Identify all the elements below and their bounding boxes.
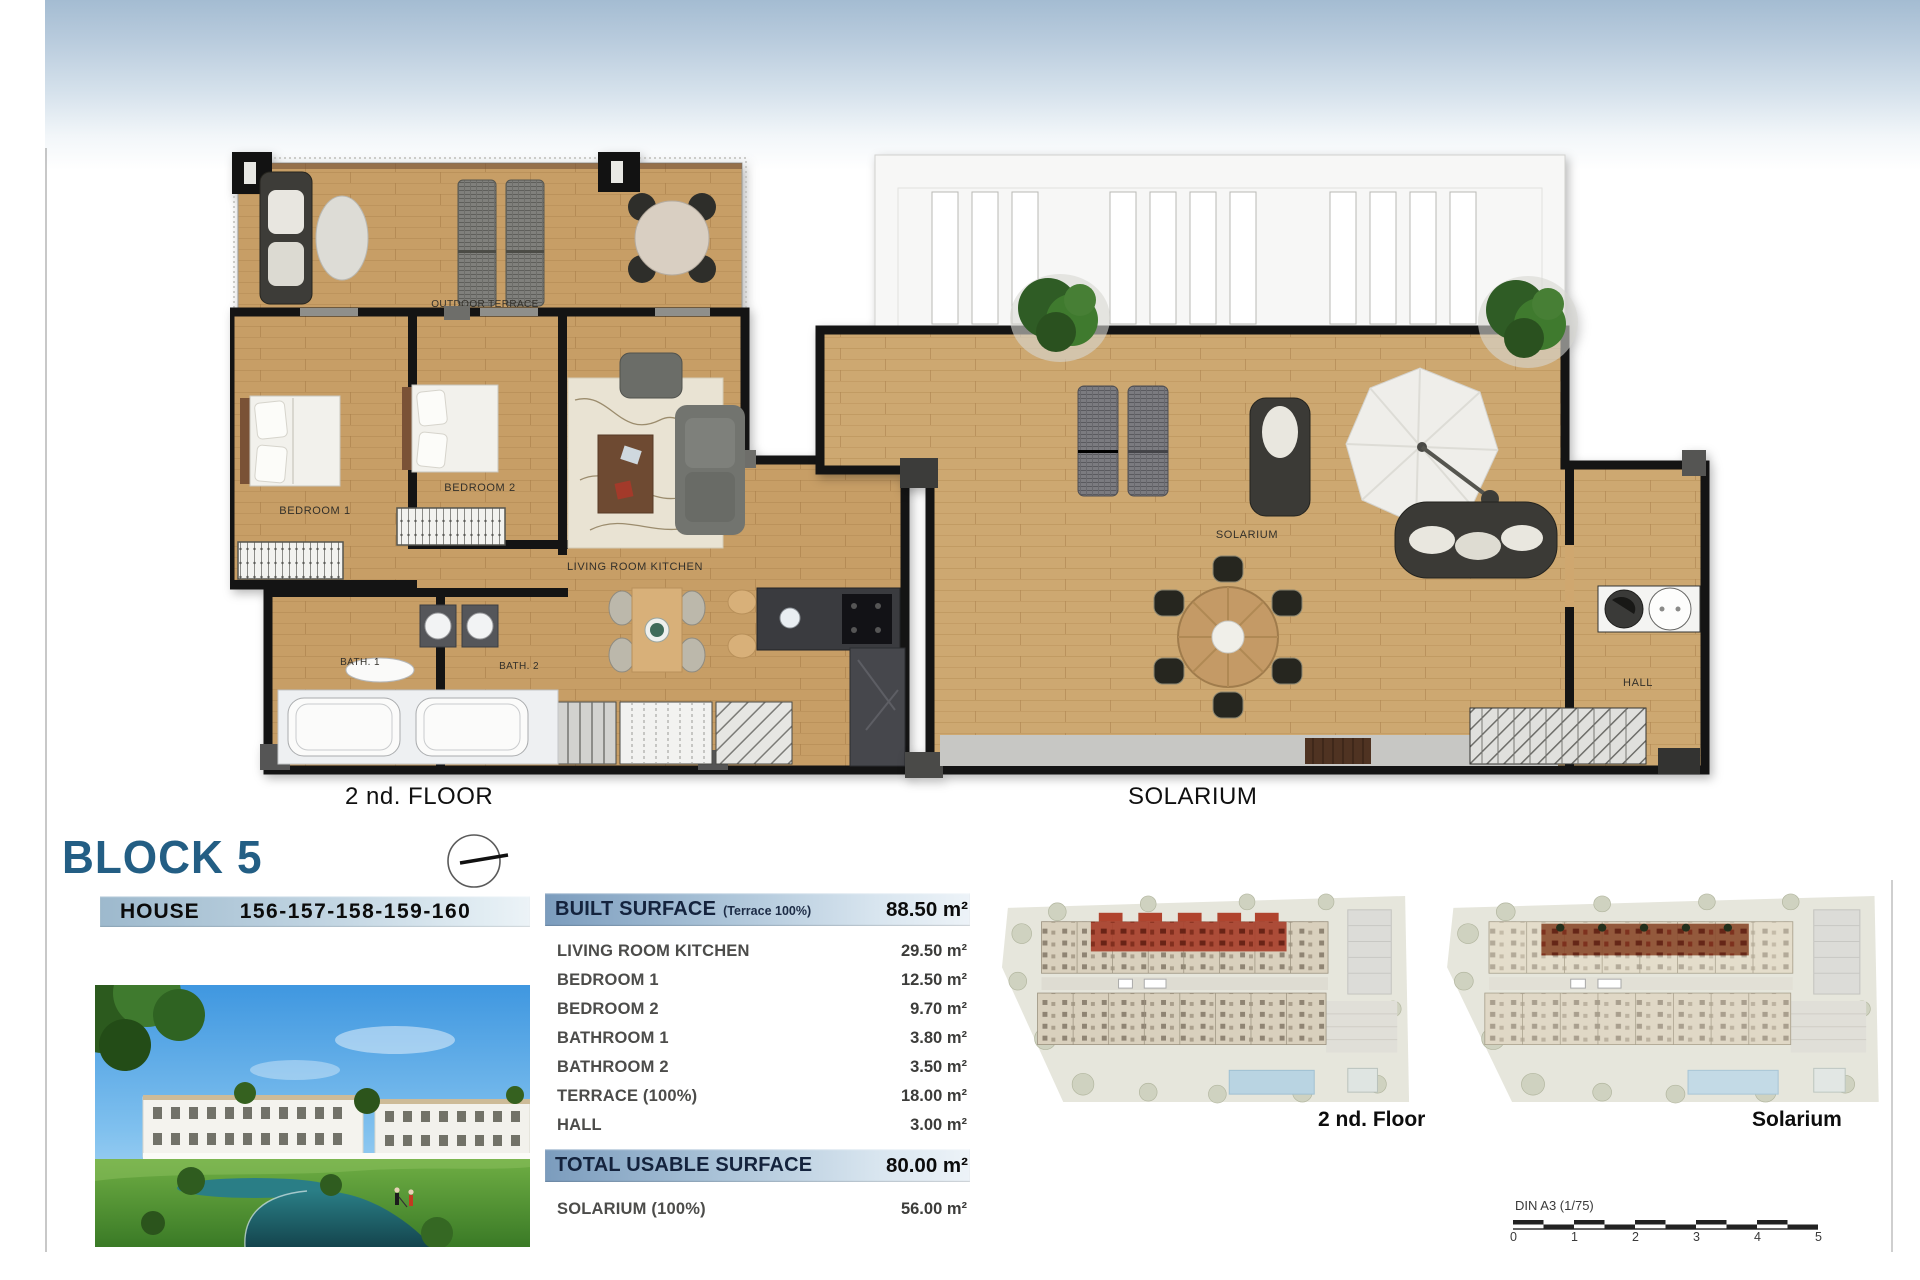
row-value: 9.70 m² xyxy=(910,1000,967,1019)
tick: 2 xyxy=(1632,1230,1639,1244)
stairs-icon xyxy=(520,702,792,764)
outdoor-terrace-area: OUTDOOR TERRACE xyxy=(232,152,746,316)
row-label: BEDROOM 1 xyxy=(557,971,659,990)
tick: 0 xyxy=(1510,1230,1517,1244)
row-value: 3.50 m² xyxy=(910,1058,967,1077)
row-label: SOLARIUM (100%) xyxy=(557,1200,706,1219)
tick: 3 xyxy=(1693,1230,1700,1244)
site-plan-solarium-label: Solarium xyxy=(1752,1108,1842,1132)
bath1-label: BATH. 1 xyxy=(340,657,380,668)
table-row: LIVING ROOM KITCHEN 29.50 m² xyxy=(545,937,970,966)
built-surface-value: 88.50 m² xyxy=(886,898,968,922)
row-label: BATHROOM 1 xyxy=(557,1029,669,1048)
scale-bar xyxy=(1513,1217,1821,1231)
plant-icon-right xyxy=(1478,276,1578,368)
right-page-rule xyxy=(1891,880,1893,1252)
surface-rows: LIVING ROOM KITCHEN 29.50 m² BEDROOM 1 1… xyxy=(545,937,970,1140)
resort-photo xyxy=(95,985,530,1247)
sky-gradient-banner xyxy=(45,0,1920,170)
row-value: 56.00 m² xyxy=(901,1200,967,1219)
surface-table: BUILT SURFACE (Terrace 100%) 88.50 m² LI… xyxy=(545,893,970,1224)
bedroom2-label: BEDROOM 2 xyxy=(444,482,515,494)
row-value: 18.00 m² xyxy=(901,1087,967,1106)
row-value: 12.50 m² xyxy=(901,971,967,990)
built-surface-note: (Terrace 100%) xyxy=(723,904,811,918)
pergola-structure xyxy=(875,155,1565,330)
row-label: HALL xyxy=(557,1116,602,1135)
site-plan-floor-label: 2 nd. Floor xyxy=(1318,1108,1425,1132)
row-label: BEDROOM 2 xyxy=(557,1000,659,1019)
tick: 1 xyxy=(1571,1230,1578,1244)
site-plan-2nd-floor xyxy=(1000,890,1415,1108)
row-label: TERRACE (100%) xyxy=(557,1087,697,1106)
scale-bar-ticks: 0 1 2 3 4 5 xyxy=(1513,1230,1825,1246)
bedroom2-furniture xyxy=(397,385,505,545)
solarium-plan: SOLARIUM HALL xyxy=(810,150,1710,780)
row-label: BATHROOM 2 xyxy=(557,1058,669,1077)
table-row: BEDROOM 2 9.70 m² xyxy=(545,995,970,1024)
terrace-sofa-icon xyxy=(260,172,312,304)
site-plan-solarium xyxy=(1445,890,1885,1108)
built-surface-label: BUILT SURFACE xyxy=(555,898,716,921)
table-row: BATHROOM 1 3.80 m² xyxy=(545,1024,970,1053)
terrace-side-table-icon xyxy=(316,196,368,280)
solarium-surface-row: SOLARIUM (100%) 56.00 m² xyxy=(545,1195,970,1224)
table-row: BATHROOM 2 3.50 m² xyxy=(545,1053,970,1082)
table-row: HALL 3.00 m² xyxy=(545,1111,970,1140)
total-label: TOTAL USABLE SURFACE xyxy=(555,1154,812,1177)
summer-kitchen-icon xyxy=(1598,586,1700,632)
built-surface-header: BUILT SURFACE (Terrace 100%) 88.50 m² xyxy=(545,893,970,926)
terrace-round-table-icon xyxy=(628,193,716,283)
plant-icon-left xyxy=(1010,274,1110,362)
building-strips xyxy=(1485,922,1793,1045)
bath2-label: BATH. 2 xyxy=(499,661,539,672)
floor-plan-2nd-floor: OUTDOOR TERRACE BEDROOM 1 xyxy=(230,150,910,775)
solarium-room-label: SOLARIUM xyxy=(1216,529,1278,541)
row-value: 3.00 m² xyxy=(910,1116,967,1135)
hall-label: HALL xyxy=(1623,677,1653,689)
house-label: HOUSE xyxy=(120,900,200,924)
table-row: TERRACE (100%) 18.00 m² xyxy=(545,1082,970,1111)
north-compass-icon xyxy=(438,828,514,894)
hall-stairs-icon xyxy=(1470,708,1646,764)
row-value: 29.50 m² xyxy=(901,942,967,961)
living-room-furniture xyxy=(568,353,745,548)
living-room-kitchen-label: LIVING ROOM KITCHEN xyxy=(567,561,703,573)
total-usable-surface-bar: TOTAL USABLE SURFACE 80.00 m² xyxy=(545,1149,970,1182)
house-numbers-bar: HOUSE 156-157-158-159-160 xyxy=(100,896,530,927)
building-strips xyxy=(1038,913,1329,1045)
brochure-page: { "header": { "block_title": "BLOCK 5", … xyxy=(0,0,1920,1280)
row-label: LIVING ROOM KITCHEN xyxy=(557,942,750,961)
block-title: BLOCK 5 xyxy=(62,830,263,884)
table-row: BEDROOM 1 12.50 m² xyxy=(545,966,970,995)
floor-plan-title: 2 nd. FLOOR xyxy=(345,783,493,811)
scale-bar-label: DIN A3 (1/75) xyxy=(1515,1198,1594,1213)
solarium-plan-title: SOLARIUM xyxy=(1128,783,1257,811)
total-value: 80.00 m² xyxy=(886,1154,968,1178)
tick: 5 xyxy=(1815,1230,1822,1244)
house-numbers: 156-157-158-159-160 xyxy=(240,900,472,924)
left-page-rule xyxy=(45,148,47,1252)
row-value: 3.80 m² xyxy=(910,1029,967,1048)
bedroom1-label: BEDROOM 1 xyxy=(279,505,350,517)
tick: 4 xyxy=(1754,1230,1761,1244)
